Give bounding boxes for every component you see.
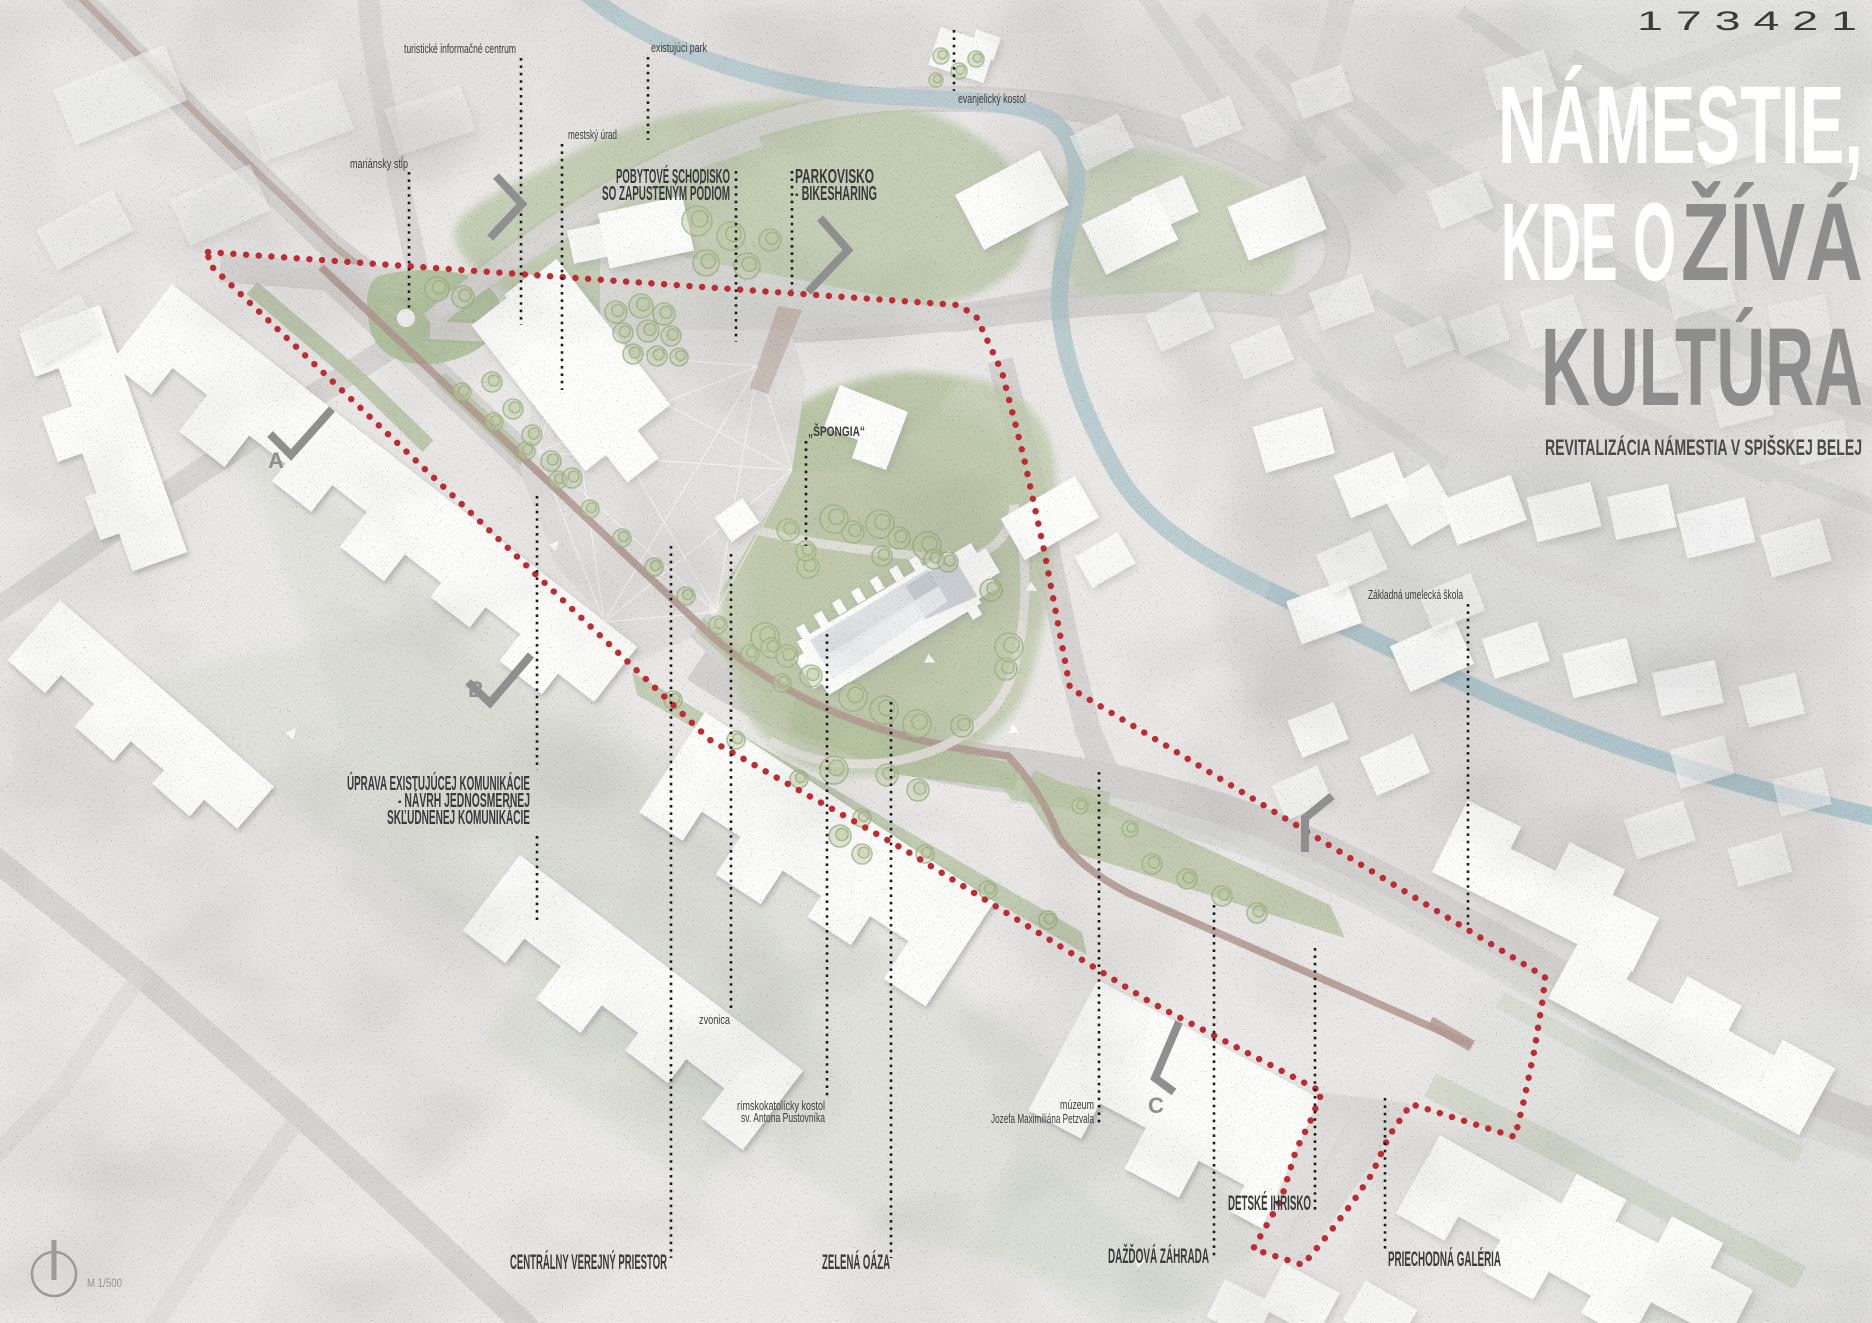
svg-text:evanjelický kostol: evanjelický kostol [958, 92, 1026, 106]
svg-text:mestský úrad: mestský úrad [568, 128, 617, 142]
svg-text:NÁMESTIE,: NÁMESTIE, [1498, 64, 1863, 187]
svg-text:REVITALIZÁCIA NÁMESTIA V SPIŠS: REVITALIZÁCIA NÁMESTIA V SPIŠSKEJ BELEJ [1545, 435, 1862, 460]
svg-text:1 7 3 4 2 1: 1 7 3 4 2 1 [1637, 6, 1857, 36]
svg-text:DETSKÉ IHRISKO: DETSKÉ IHRISKO [1228, 1192, 1311, 1215]
svg-text:KDE O: KDE O [1501, 181, 1676, 304]
svg-text:M 1/500: M 1/500 [87, 1278, 122, 1290]
svg-text:A: A [268, 448, 284, 473]
svg-text:múzeum: múzeum [1060, 1098, 1094, 1112]
svg-text:PRIECHODNÁ GALÉRIA: PRIECHODNÁ GALÉRIA [1388, 1248, 1501, 1271]
svg-text:SO ZAPUSTENÝM PÓDIOM: SO ZAPUSTENÝM PÓDIOM [602, 181, 730, 205]
svg-text:KULTÚRA: KULTÚRA [1541, 306, 1863, 429]
svg-text:sv. Antona Pustovníka: sv. Antona Pustovníka [741, 1111, 825, 1125]
svg-text:C: C [1148, 1093, 1164, 1118]
svg-text:existujúci park: existujúci park [651, 41, 708, 55]
svg-text:DAŽĎOVÁ ZÁHRADA: DAŽĎOVÁ ZÁHRADA [1108, 1244, 1209, 1268]
svg-text:mariánsky stĺp: mariánsky stĺp [350, 156, 408, 171]
svg-text:Základná umelecká škola: Základná umelecká škola [1368, 588, 1463, 602]
svg-text:zvonica: zvonica [699, 1013, 730, 1027]
svg-text:ŽÍVÁ: ŽÍVÁ [1681, 181, 1863, 304]
svg-text:„ŠPONGIA“: „ŠPONGIA“ [808, 422, 865, 439]
svg-text:SKĽUDNENEJ KOMUNIKÁCIE: SKĽUDNENEJ KOMUNIKÁCIE [387, 806, 530, 829]
svg-text:ZELENÁ OÁZA: ZELENÁ OÁZA [822, 1251, 890, 1274]
svg-text:Jozefa Maximiliána Petzvala: Jozefa Maximiliána Petzvala [991, 1112, 1094, 1126]
svg-text:CENTRÁLNY VEREJNÝ PRIESTOR: CENTRÁLNY VEREJNÝ PRIESTOR [510, 1250, 667, 1274]
svg-text:B: B [468, 677, 484, 702]
svg-text:- BIKESHARING: - BIKESHARING [795, 183, 877, 205]
svg-text:turistické informačné centrum: turistické informačné centrum [404, 42, 516, 56]
